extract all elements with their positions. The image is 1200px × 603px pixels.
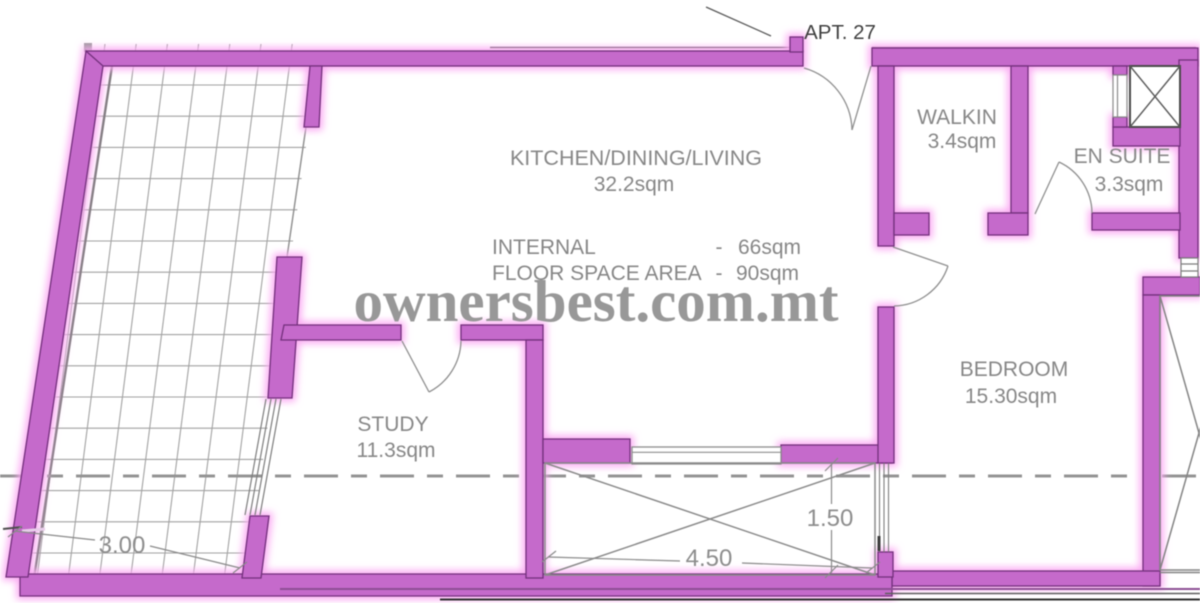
svg-text:ownersbest.com.mt: ownersbest.com.mt bbox=[354, 268, 839, 334]
svg-text:BEDROOM: BEDROOM bbox=[960, 358, 1069, 381]
svg-text:3.4sqm: 3.4sqm bbox=[928, 130, 997, 153]
svg-text:15.30sqm: 15.30sqm bbox=[965, 385, 1057, 408]
svg-text:STUDY: STUDY bbox=[357, 413, 428, 436]
svg-text:1.50: 1.50 bbox=[807, 505, 854, 532]
svg-text:3.3sqm: 3.3sqm bbox=[1095, 173, 1164, 196]
svg-text:INTERNAL: INTERNAL bbox=[492, 236, 596, 259]
svg-text:KITCHEN/DINING/LIVING: KITCHEN/DINING/LIVING bbox=[510, 146, 762, 170]
svg-text:WALKIN: WALKIN bbox=[917, 106, 997, 129]
svg-text:66sqm: 66sqm bbox=[738, 236, 801, 259]
svg-text:11.3sqm: 11.3sqm bbox=[357, 439, 436, 462]
svg-text:3.00: 3.00 bbox=[99, 532, 146, 559]
svg-text:4.50: 4.50 bbox=[686, 545, 733, 572]
svg-text:-: - bbox=[716, 236, 723, 259]
svg-text:32.2sqm: 32.2sqm bbox=[594, 173, 675, 196]
svg-text:APT. 27: APT. 27 bbox=[804, 21, 876, 44]
svg-text:EN SUITE: EN SUITE bbox=[1074, 145, 1171, 168]
